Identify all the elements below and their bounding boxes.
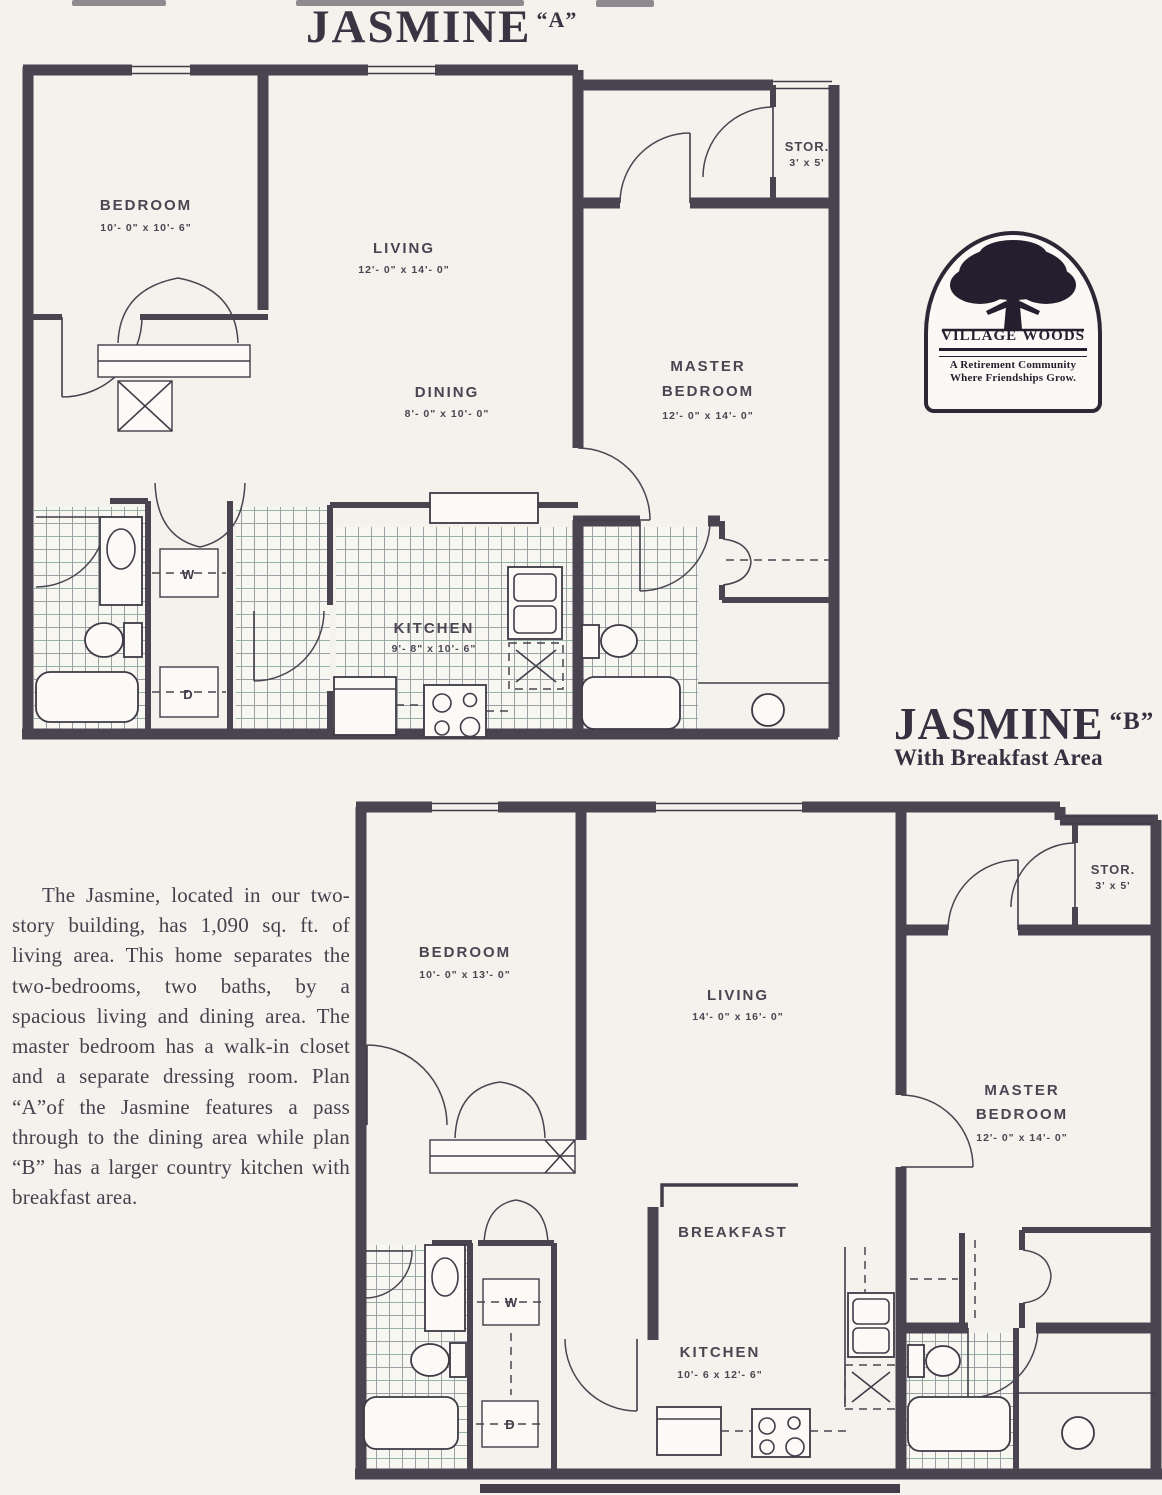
living-label: LIVING xyxy=(707,987,769,1004)
bedroom-dims: 10'- 0" x 10'- 6" xyxy=(100,222,192,234)
storage-dims: 3' x 5' xyxy=(1095,880,1130,892)
dressing-sink xyxy=(1062,1417,1094,1449)
tree-icon xyxy=(928,235,1098,339)
bedroom-dims: 10'- 0" x 13'- 0" xyxy=(419,969,511,981)
master-bedroom-label: MASTER xyxy=(670,358,745,375)
toilet-tank xyxy=(908,1345,924,1377)
plan-b-subtitle: With Breakfast Area xyxy=(894,745,1162,771)
dressing-sink xyxy=(752,694,784,726)
logo-name: VILLAGE WOODS xyxy=(928,328,1098,345)
master-bedroom-dims: 12'- 0" x 14'- 0" xyxy=(662,410,754,422)
laundry-closet: W D xyxy=(152,549,226,717)
bedroom-label: BEDROOM xyxy=(419,944,511,961)
kitchen-sink xyxy=(848,1293,894,1357)
plan-b-title-name: JASMINE xyxy=(894,699,1104,749)
bathtub xyxy=(36,672,138,722)
dryer-label: D xyxy=(183,687,192,702)
washer-label: W xyxy=(182,567,195,582)
kitchen-dims: 10'- 6 x 12'- 6" xyxy=(677,1369,763,1381)
master-bedroom-label2: BEDROOM xyxy=(976,1106,1068,1123)
toilet xyxy=(926,1346,960,1376)
toilet xyxy=(411,1344,449,1376)
description-paragraph: The Jasmine, located in our two-story bu… xyxy=(12,880,350,1213)
pass-through xyxy=(430,493,538,523)
toilet-tank xyxy=(450,1343,466,1377)
plan-a-title-variant: “A” xyxy=(537,7,578,32)
vanity xyxy=(100,517,142,605)
washer-label: W xyxy=(505,1295,518,1310)
kitchen-label: KITCHEN xyxy=(680,1344,761,1361)
breakfast-half-wall xyxy=(662,1185,798,1207)
kitchen-dims: 9'- 8" x 10'- 6" xyxy=(392,643,477,655)
dryer-label: D xyxy=(505,1417,514,1432)
toilet-tank xyxy=(124,623,142,657)
floor-plan-b: W D xyxy=(350,795,1162,1495)
plan-b-title: JASMINE“B” With Breakfast Area xyxy=(894,702,1162,771)
counter xyxy=(657,1407,721,1455)
scan-smudge xyxy=(72,0,166,6)
kitchen-sink xyxy=(508,567,562,639)
bathtub xyxy=(364,1397,458,1449)
village-woods-logo: VILLAGE WOODS A Retirement Community Whe… xyxy=(924,231,1102,413)
breakfast-label: BREAKFAST xyxy=(678,1224,788,1241)
plan-b-title-variant: “B” xyxy=(1110,708,1155,735)
scan-smudge xyxy=(596,0,654,7)
logo-tagline-2: Where Friendships Grow. xyxy=(928,372,1098,385)
counter xyxy=(334,677,396,735)
brochure-page: JASMINE“A” xyxy=(0,0,1162,1495)
storage-dims: 3' x 5' xyxy=(789,157,824,169)
master-bedroom-label: MASTER xyxy=(984,1082,1059,1099)
bathtub xyxy=(582,677,680,729)
logo-divider xyxy=(939,348,1087,357)
master-bedroom-dims: 12'- 0" x 14'- 0" xyxy=(976,1132,1068,1144)
living-dims: 14'- 0" x 16'- 0" xyxy=(692,1011,784,1023)
toilet-tank xyxy=(582,625,599,658)
logo-name-left: VILLAGE xyxy=(941,328,1017,345)
floor-plan-a: W D xyxy=(20,55,845,747)
plan-a-title: JASMINE“A” xyxy=(306,0,577,54)
plan-a-title-name: JASMINE xyxy=(306,1,532,53)
laundry-closet: W D xyxy=(476,1279,546,1447)
storage-label: STOR. xyxy=(785,139,830,154)
kitchen-label: KITCHEN xyxy=(394,620,475,637)
logo-tagline-1: A Retirement Community xyxy=(928,359,1098,372)
dining-dims: 8'- 0" x 10'- 0" xyxy=(405,408,490,420)
stove xyxy=(424,685,486,737)
logo-name-right: WOODS xyxy=(1022,328,1085,345)
logo-tagline: A Retirement Community Where Friendships… xyxy=(928,359,1098,385)
bedroom-label: BEDROOM xyxy=(100,197,192,214)
scan-band xyxy=(480,1484,900,1493)
master-bedroom-label2: BEDROOM xyxy=(662,383,754,400)
living-label: LIVING xyxy=(373,240,435,257)
dining-label: DINING xyxy=(415,384,480,401)
storage-label: STOR. xyxy=(1091,862,1136,877)
master-bathroom xyxy=(908,1345,1156,1451)
toilet xyxy=(85,623,123,657)
living-dims: 12'- 0" x 14'- 0" xyxy=(358,264,450,276)
master-bathroom xyxy=(582,625,832,729)
bathtub xyxy=(908,1397,1010,1451)
toilet xyxy=(601,625,637,657)
